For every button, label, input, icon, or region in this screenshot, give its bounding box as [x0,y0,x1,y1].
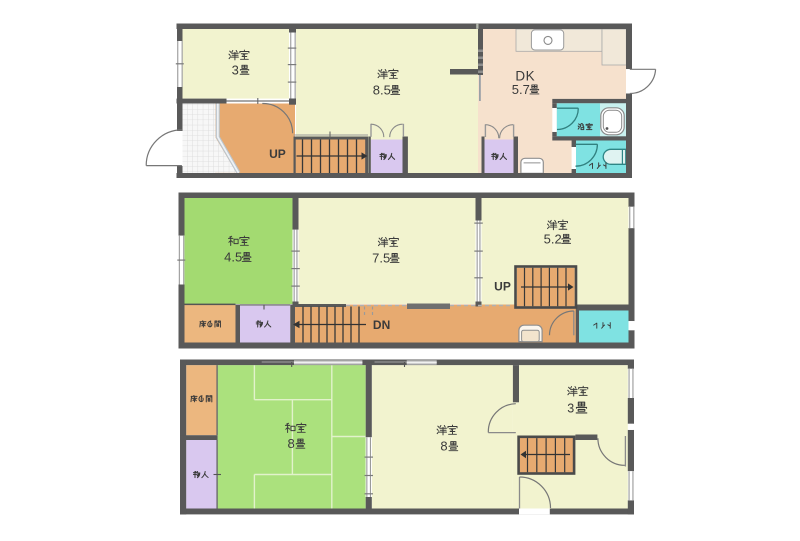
svg-text:5.7: 5.7 [512,82,530,97]
svg-text:8.5: 8.5 [373,82,391,97]
svg-text:8: 8 [287,436,294,451]
svg-text:4.5: 4.5 [224,249,242,264]
svg-text:UP: UP [269,147,286,161]
svg-text:3: 3 [232,62,239,77]
svg-text:UP: UP [494,280,511,294]
svg-text:3: 3 [567,401,574,415]
svg-text:8: 8 [440,439,447,454]
svg-text:DN: DN [373,318,390,332]
svg-text:5.2: 5.2 [544,231,562,246]
svg-text:7.5: 7.5 [372,251,390,266]
